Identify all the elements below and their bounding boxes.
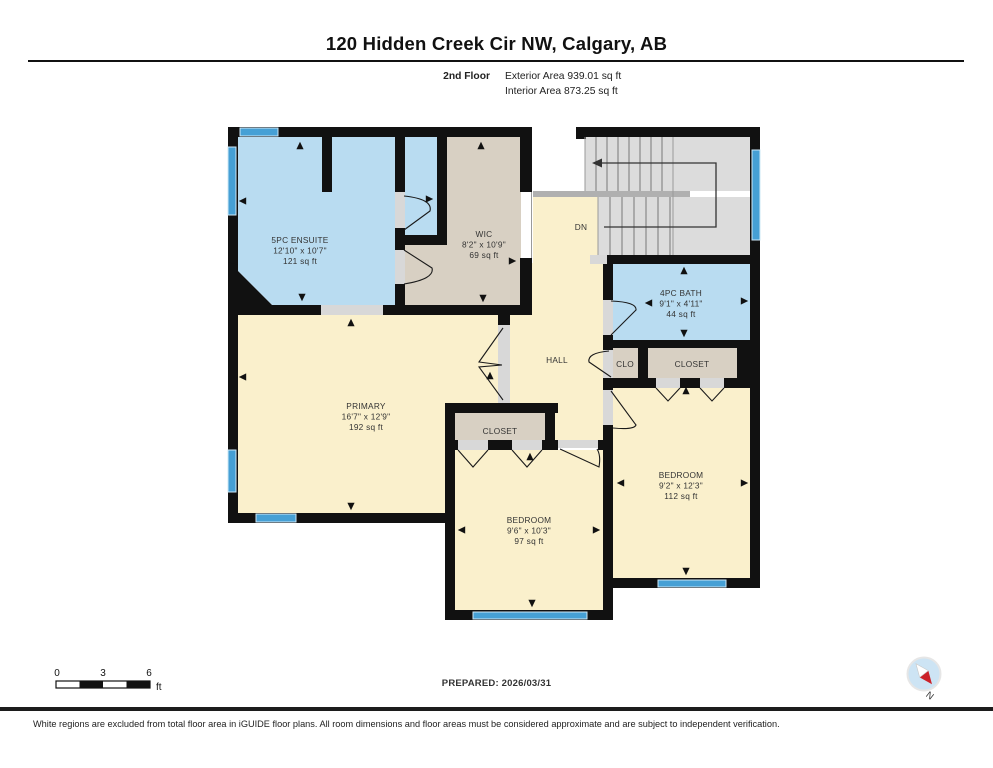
- bedroom-right-name: BEDROOM: [659, 470, 704, 480]
- window: [473, 612, 587, 619]
- bedroom-right-area: 112 sq ft: [664, 491, 698, 501]
- ensuite-name: 5PC ENSUITE: [271, 235, 328, 245]
- ensuite-area: 121 sq ft: [283, 256, 318, 266]
- room-hall-mid: [532, 263, 603, 315]
- window: [752, 150, 760, 240]
- room-hall-lower: [555, 403, 603, 440]
- bath-name: 4PC BATH: [660, 288, 702, 298]
- window: [228, 450, 236, 492]
- room-hall-upper: [533, 197, 598, 263]
- bath-dims: 9'1" x 4'11": [659, 299, 702, 309]
- window: [256, 514, 296, 522]
- primary-dims: 16'7" x 12'9": [342, 412, 391, 422]
- wic-dims: 8'2" x 10'9": [462, 240, 506, 250]
- bedroom-bottom-area: 97 sq ft: [514, 536, 544, 546]
- floorplan-page: 120 Hidden Creek Cir NW, Calgary, AB 2nd…: [0, 0, 993, 768]
- stairs-lower-flight: [598, 197, 750, 255]
- room-ensuite: [238, 137, 395, 305]
- wic-area: 69 sq ft: [469, 250, 499, 260]
- footer-divider: [0, 707, 993, 711]
- closet-right-label: CLOSET: [675, 359, 710, 369]
- wic-name: WIC: [476, 229, 493, 239]
- bedroom-bottom-name: BEDROOM: [507, 515, 552, 525]
- compass-north-label: N: [923, 690, 935, 703]
- bedroom-right-dims: 9'2" x 12'3": [659, 481, 703, 491]
- window: [228, 147, 236, 215]
- ensuite-dims: 12'10" x 10'7": [273, 246, 327, 256]
- stairs-down-label: DN: [575, 222, 587, 232]
- window: [658, 580, 726, 587]
- clo-label: CLO: [616, 359, 634, 369]
- stairs-upper-flight: [585, 137, 750, 191]
- floor-plan-drawing: 5PC ENSUITE 12'10" x 10'7" 121 sq ft WIC…: [0, 0, 993, 768]
- prepared-date: PREPARED: 2026/03/31: [0, 678, 993, 689]
- room-ensuite-wc: [405, 137, 437, 235]
- closet-bottom-label: CLOSET: [483, 426, 518, 436]
- primary-name: PRIMARY: [346, 401, 386, 411]
- bath-area: 44 sq ft: [666, 309, 696, 319]
- disclaimer-text: White regions are excluded from total fl…: [33, 719, 963, 729]
- window: [240, 128, 278, 136]
- hall-label: HALL: [546, 355, 568, 365]
- primary-area: 192 sq ft: [349, 422, 384, 432]
- bedroom-bottom-dims: 9'6" x 10'3": [507, 526, 551, 536]
